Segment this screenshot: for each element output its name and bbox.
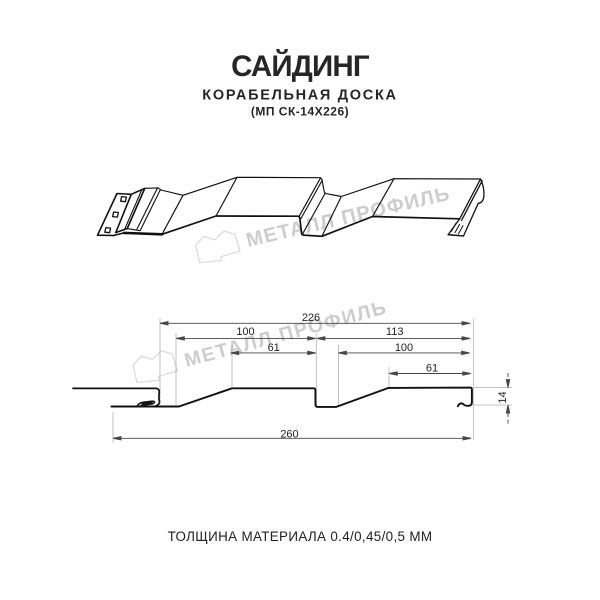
svg-text:113: 113 [386, 326, 404, 338]
svg-text:ТОЛЩИНА МАТЕРИАЛА 0.4/0,45/0,5: ТОЛЩИНА МАТЕРИАЛА 0.4/0,45/0,5 ММ [168, 529, 433, 544]
svg-text:100: 100 [236, 326, 254, 338]
svg-text:260: 260 [280, 428, 298, 440]
svg-text:61: 61 [268, 342, 280, 354]
svg-text:КОРАБЕЛЬНАЯ ДОСКА: КОРАБЕЛЬНАЯ ДОСКА [202, 88, 397, 104]
svg-text:МЕТАЛЛ ПРОФИЛЬ: МЕТАЛЛ ПРОФИЛЬ [182, 296, 390, 371]
svg-text:100: 100 [395, 342, 413, 354]
svg-text:САЙДИНГ: САЙДИНГ [231, 49, 370, 83]
svg-text:14: 14 [497, 391, 509, 403]
svg-text:226: 226 [302, 312, 320, 324]
svg-text:61: 61 [426, 362, 438, 374]
svg-text:(МП СК-14Х226): (МП СК-14Х226) [251, 105, 349, 119]
